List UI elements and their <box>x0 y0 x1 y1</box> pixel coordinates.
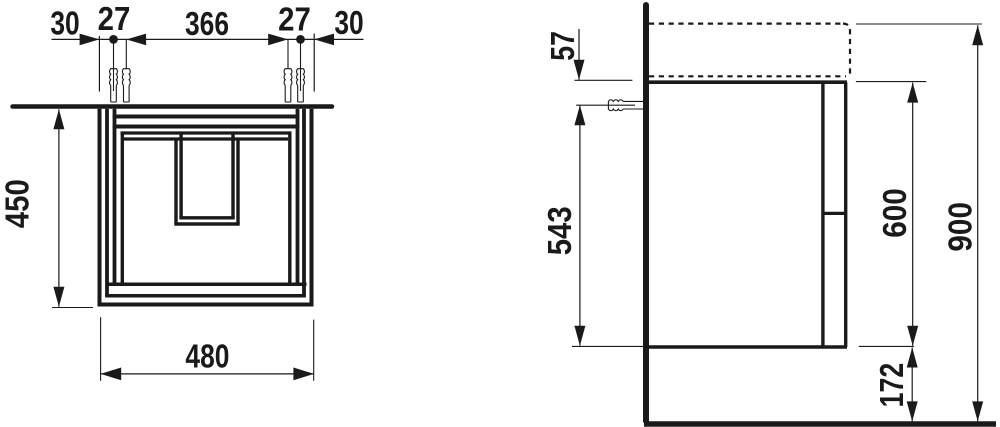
svg-text:172: 172 <box>874 363 910 408</box>
svg-text:543: 543 <box>541 206 578 255</box>
svg-text:480: 480 <box>185 339 229 376</box>
svg-text:57: 57 <box>545 31 581 61</box>
svg-text:600: 600 <box>875 188 913 238</box>
svg-text:900: 900 <box>941 202 979 252</box>
svg-text:30: 30 <box>334 5 363 42</box>
svg-text:27: 27 <box>278 1 311 38</box>
svg-text:30: 30 <box>50 6 79 43</box>
svg-text:366: 366 <box>185 6 229 43</box>
svg-text:450: 450 <box>0 179 36 228</box>
svg-text:27: 27 <box>98 0 131 37</box>
